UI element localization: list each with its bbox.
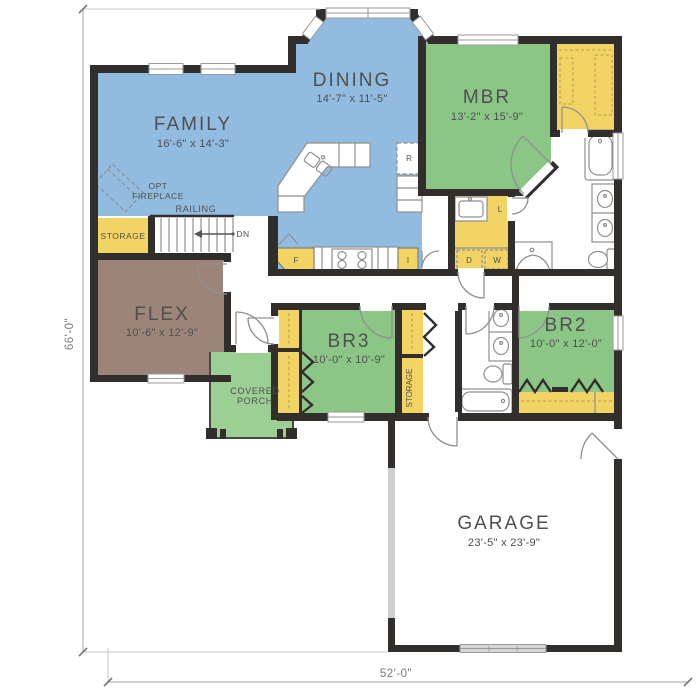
hall-opening: [426, 302, 458, 311]
hall-closet-bifold: [424, 313, 436, 356]
storage-hall-label: STORAGE: [405, 369, 414, 408]
family-label: FAMILY: [154, 114, 232, 135]
br2-closet: [519, 392, 614, 413]
br2-dims: 10'-0" x 12'-0": [530, 338, 602, 350]
storage-understairs-label: STORAGE: [101, 231, 146, 241]
linen-label: L: [498, 205, 503, 214]
dn-label: DN: [236, 229, 249, 239]
garage-side-panel: [388, 468, 395, 618]
window: [201, 64, 235, 75]
master-toilet-icon: [589, 249, 618, 270]
window: [149, 64, 183, 75]
coat-closet-door: [248, 316, 279, 344]
depth-dimension: 66'-0": [64, 5, 87, 656]
opt-fireplace-label-2: FIREPLACE: [132, 191, 184, 201]
refrigerator-label: R: [406, 154, 412, 163]
br2-label: BR2: [545, 315, 588, 336]
garage-dims: 23'-5" x 23'-9": [468, 537, 540, 549]
laundry-door: [458, 268, 484, 298]
mbr-walkin-closet: [557, 44, 614, 130]
pantry-right-label: I: [407, 256, 409, 265]
railing-label: RAILING: [176, 204, 217, 214]
garage-door: [460, 645, 546, 653]
linen-door: [507, 197, 528, 221]
pantry-left-label: F: [294, 256, 299, 265]
br2-closet-stub: [552, 387, 568, 392]
master-tub-icon: [585, 130, 616, 180]
window: [328, 412, 364, 422]
floor-plan: FAMILY 16'-6" x 14'-3" DINING 14'-7" x 1…: [0, 0, 700, 700]
pantry-door-arc: [422, 251, 439, 268]
flex-dims: 10'-6" x 12'-9": [126, 327, 198, 339]
dining-dims: 14'-7" x 11'-5": [316, 93, 387, 105]
floor-plan-svg: FAMILY 16'-6" x 14'-3" DINING 14'-7" x 1…: [0, 0, 700, 700]
hall-toilet-icon: [484, 364, 512, 384]
mbr-dims: 13'-2" x 15'-9": [451, 111, 523, 123]
width-dimension: 52'-0": [104, 668, 692, 686]
width-dimension-text: 52'-0": [380, 668, 412, 680]
window: [613, 316, 623, 350]
flex-label: FLEX: [134, 304, 190, 325]
dining-label: DINING: [313, 70, 392, 91]
depth-dimension-text: 66'-0": [64, 318, 76, 350]
br3-label: BR3: [328, 331, 371, 352]
opt-fireplace-label-1: OPT: [149, 181, 168, 191]
window: [326, 8, 410, 18]
garage-hall-door: [428, 412, 458, 446]
window: [148, 374, 184, 383]
window: [613, 133, 623, 179]
garage-label: GARAGE: [457, 513, 550, 534]
porch-label-2: PORCH: [237, 396, 273, 406]
range-icon: [332, 249, 372, 270]
garage-side-door: [581, 429, 623, 459]
porch-label-1: COVERED: [230, 386, 279, 396]
hall-tub-icon: [459, 389, 512, 414]
washer-label: W: [493, 256, 501, 265]
family-dims: 16'-6" x 14'-3": [157, 138, 229, 150]
window: [458, 35, 518, 45]
hall-bath-fixtures: [459, 304, 514, 414]
dryer-label: D: [466, 256, 472, 265]
br3-dims: 10'-0" x 10'-9": [313, 354, 385, 366]
mbr-label: MBR: [463, 87, 511, 108]
